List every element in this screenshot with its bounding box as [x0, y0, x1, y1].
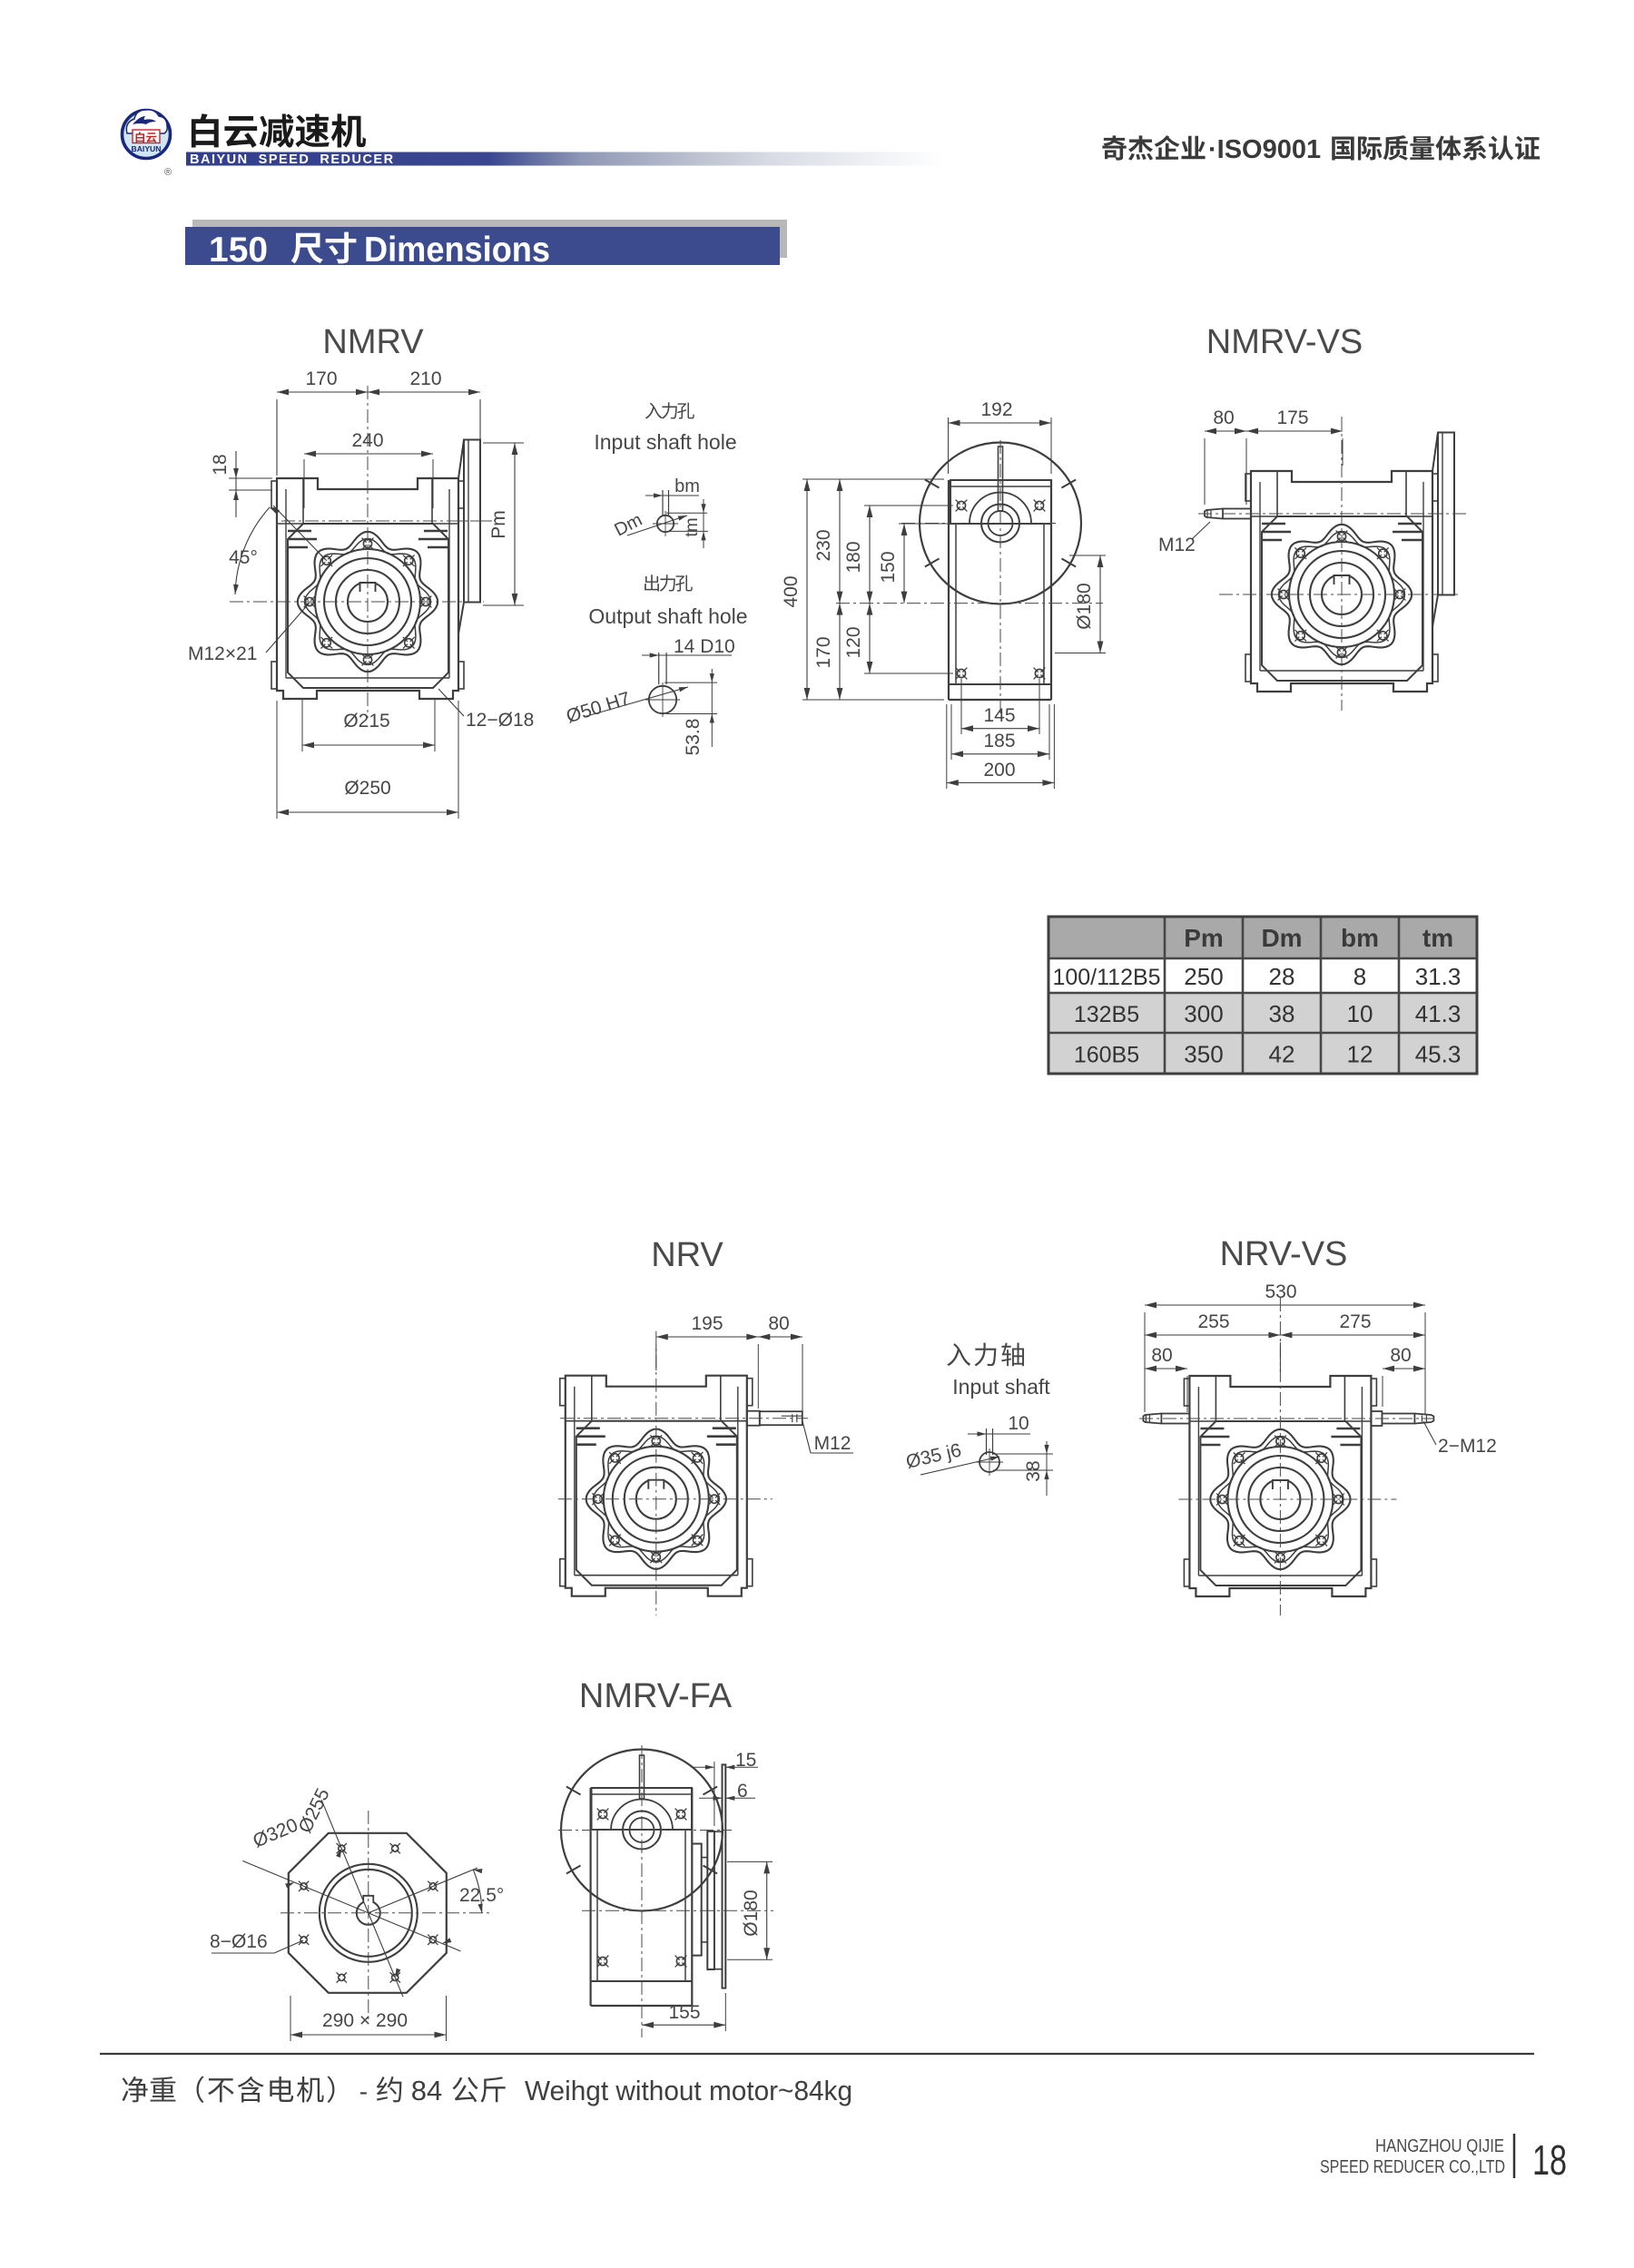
- svg-text:290 × 290: 290 × 290: [322, 2010, 408, 2031]
- svg-text:175: 175: [1276, 407, 1308, 428]
- svg-text:38: 38: [1023, 1460, 1044, 1481]
- svg-text:80: 80: [1151, 1345, 1172, 1366]
- svg-text:2−M12: 2−M12: [1438, 1436, 1497, 1457]
- svg-text:8−Ø16: 8−Ø16: [210, 1931, 268, 1952]
- svg-text:38: 38: [1269, 1000, 1295, 1027]
- svg-text:NMRV-VS: NMRV-VS: [1206, 323, 1363, 361]
- svg-text:250: 250: [1184, 963, 1223, 990]
- svg-text:180: 180: [843, 541, 864, 573]
- svg-text:Dm: Dm: [1261, 924, 1302, 952]
- svg-text:Dimensions: Dimensions: [364, 231, 550, 270]
- svg-text:100/112B5: 100/112B5: [1052, 965, 1160, 990]
- svg-text:240: 240: [351, 430, 383, 451]
- svg-text:185: 185: [983, 731, 1015, 751]
- svg-text:22.5°: 22.5°: [459, 1885, 504, 1906]
- svg-text:15: 15: [735, 1750, 756, 1771]
- svg-text:10: 10: [1008, 1413, 1029, 1434]
- svg-text:SPEED REDUCER CO.,LTD: SPEED REDUCER CO.,LTD: [1320, 2157, 1505, 2177]
- svg-text:Pm: Pm: [1184, 924, 1224, 952]
- svg-text:Ø250: Ø250: [344, 778, 390, 799]
- svg-text:300: 300: [1184, 1000, 1223, 1027]
- svg-text:bm: bm: [674, 476, 700, 496]
- svg-text:Weihgt without motor~84kg: Weihgt without motor~84kg: [525, 2076, 852, 2106]
- svg-text:Input shaft hole: Input shaft hole: [594, 430, 736, 454]
- svg-text:150: 150: [878, 551, 899, 583]
- svg-text:42: 42: [1269, 1041, 1295, 1068]
- svg-text:HANGZHOU QIJIE: HANGZHOU QIJIE: [1375, 2136, 1504, 2156]
- svg-text:-: -: [359, 2077, 368, 2106]
- svg-text:NRV: NRV: [651, 1236, 723, 1274]
- svg-text:18: 18: [1532, 2136, 1567, 2184]
- svg-text:NRV-VS: NRV-VS: [1220, 1235, 1348, 1273]
- svg-text:tm: tm: [683, 517, 702, 536]
- svg-text:150: 150: [209, 231, 268, 270]
- svg-text:14 D10: 14 D10: [674, 636, 735, 657]
- svg-text:10: 10: [1347, 1000, 1373, 1027]
- svg-text:12−Ø18: 12−Ø18: [466, 710, 534, 731]
- svg-text:160B5: 160B5: [1074, 1043, 1139, 1068]
- svg-text:45.3: 45.3: [1415, 1041, 1462, 1068]
- svg-text:12: 12: [1347, 1041, 1373, 1068]
- svg-text:45°: 45°: [229, 547, 258, 568]
- svg-text:192: 192: [980, 399, 1012, 420]
- svg-text:·ISO9001: ·ISO9001: [1208, 135, 1321, 164]
- svg-text:255: 255: [1197, 1311, 1229, 1332]
- svg-text:6: 6: [737, 1781, 748, 1802]
- svg-text:120: 120: [843, 626, 864, 658]
- svg-text:80: 80: [1213, 407, 1234, 428]
- svg-text:®: ®: [164, 167, 172, 178]
- svg-text:M12×21: M12×21: [188, 643, 257, 664]
- svg-text:170: 170: [305, 368, 337, 389]
- svg-text:200: 200: [983, 760, 1015, 781]
- svg-text:8: 8: [1353, 963, 1366, 990]
- svg-text:Input shaft: Input shaft: [952, 1375, 1050, 1399]
- svg-text:195: 195: [691, 1313, 723, 1334]
- svg-text:170: 170: [813, 636, 834, 668]
- svg-text:275: 275: [1339, 1311, 1371, 1332]
- svg-text:400: 400: [781, 575, 802, 607]
- svg-text:Ø180: Ø180: [1074, 583, 1095, 629]
- svg-text:350: 350: [1184, 1041, 1223, 1068]
- svg-text:M12: M12: [814, 1433, 851, 1454]
- svg-text:Output shaft hole: Output shaft hole: [588, 604, 747, 628]
- svg-text:NMRV-FA: NMRV-FA: [579, 1677, 733, 1715]
- svg-text:M12: M12: [1158, 535, 1196, 555]
- svg-text:31.3: 31.3: [1415, 963, 1462, 990]
- svg-text:Ø180: Ø180: [741, 1890, 762, 1936]
- svg-text:80: 80: [768, 1313, 789, 1334]
- svg-text:145: 145: [983, 705, 1015, 726]
- svg-text:28: 28: [1269, 963, 1295, 990]
- svg-text:210: 210: [409, 368, 441, 389]
- svg-text:530: 530: [1265, 1281, 1296, 1302]
- svg-text:132B5: 132B5: [1074, 1002, 1139, 1027]
- svg-text:18: 18: [210, 454, 231, 475]
- svg-text:41.3: 41.3: [1415, 1000, 1462, 1027]
- svg-text:bm: bm: [1341, 924, 1379, 952]
- svg-text:BAIYUN: BAIYUN: [132, 144, 162, 153]
- svg-text:BAIYUN SPEED REDUCER: BAIYUN SPEED REDUCER: [190, 152, 395, 167]
- svg-text:tm: tm: [1422, 924, 1453, 952]
- svg-text:80: 80: [1390, 1345, 1411, 1366]
- svg-text:84: 84: [411, 2075, 442, 2106]
- svg-text:Pm: Pm: [488, 510, 509, 539]
- svg-text:NMRV: NMRV: [322, 323, 424, 361]
- svg-text:230: 230: [813, 529, 834, 561]
- svg-text:Ø215: Ø215: [343, 711, 389, 731]
- svg-text:155: 155: [668, 2002, 700, 2023]
- svg-text:53.8: 53.8: [683, 719, 704, 756]
